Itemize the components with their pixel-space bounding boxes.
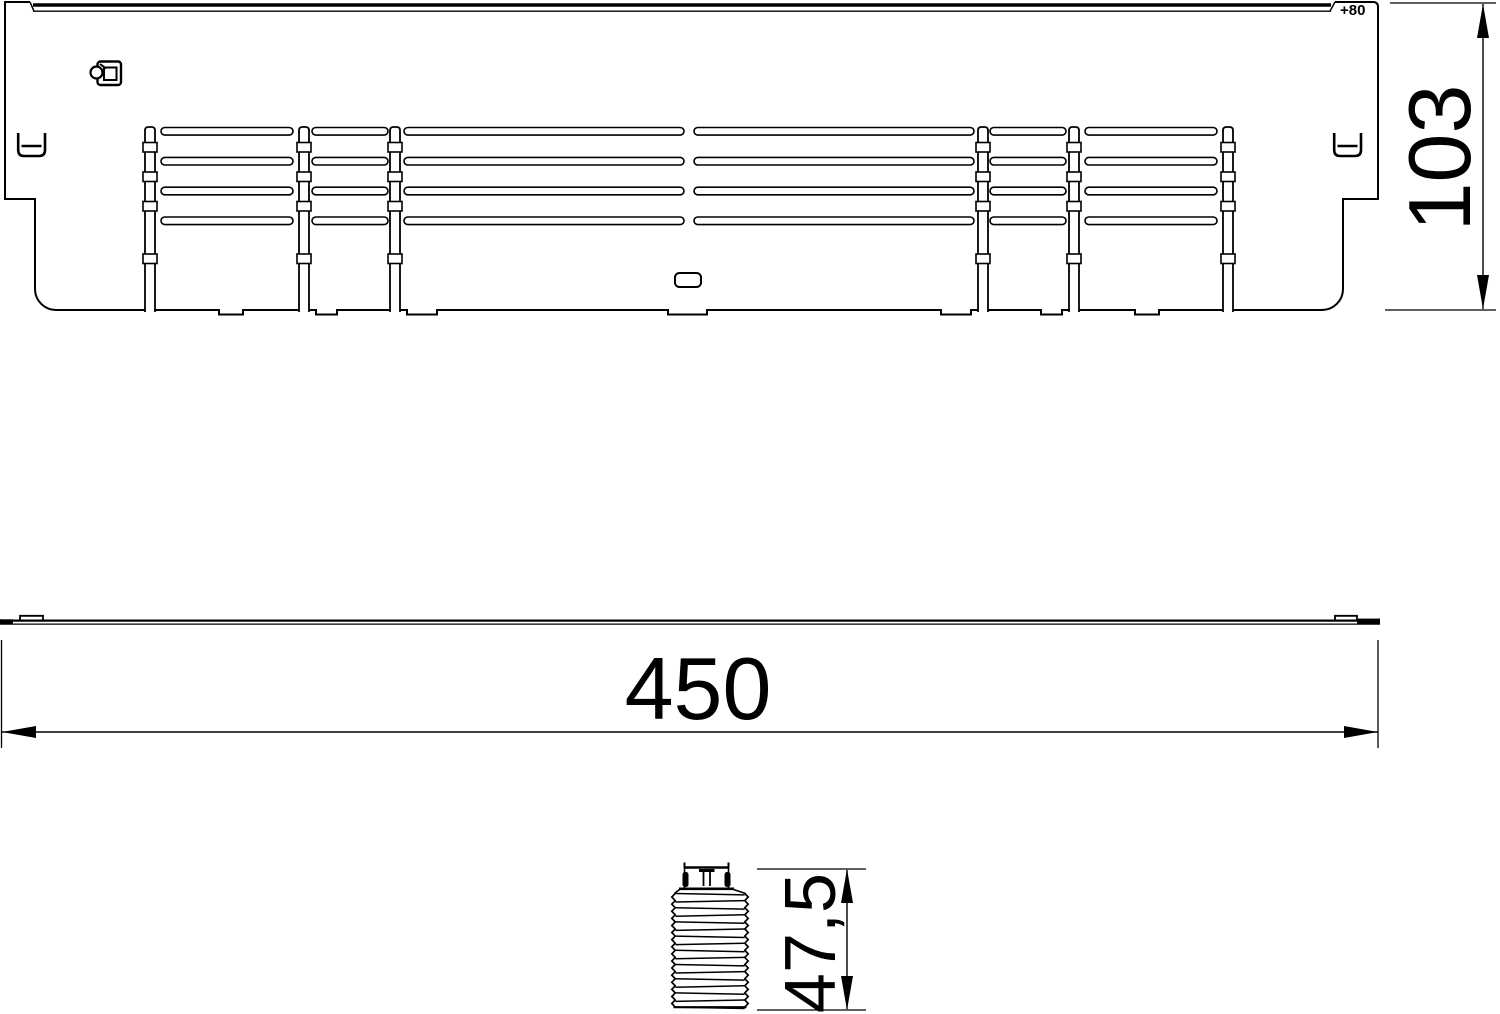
side-tab-right (1335, 616, 1357, 620)
dimension-overall-height: 103 (1385, 3, 1496, 310)
bracket-right-icon (1334, 133, 1361, 156)
vent-slot (161, 217, 293, 225)
height-dimension-label: 103 (1390, 85, 1489, 232)
offset-label: +80 (1340, 2, 1365, 19)
divider-columns (143, 127, 1235, 312)
vent-slots (161, 128, 1217, 225)
screw-thread-line (675, 965, 744, 966)
screw-thread-line (675, 979, 744, 980)
vent-slot (990, 187, 1066, 195)
vent-slot (312, 128, 388, 136)
vent-slot (312, 187, 388, 195)
vent-slot (161, 187, 293, 195)
vent-slot (990, 128, 1066, 136)
vent-slot (404, 187, 684, 195)
screw-thread-line (675, 957, 744, 958)
divider-column (1067, 127, 1081, 312)
clip-icon (91, 62, 122, 86)
latch-hole (675, 273, 701, 287)
cover-outline (5, 2, 1378, 315)
screw-length-label: 47,5 (771, 873, 851, 1013)
screw-thread-line (675, 894, 744, 895)
vent-slot (312, 217, 388, 225)
screw-thread-line (675, 972, 744, 973)
screw-thread-line (675, 950, 744, 951)
technical-drawing: +80 (0, 0, 1500, 1014)
vent-slot (694, 217, 974, 225)
technical-drawing-page: +80 (0, 0, 1500, 1014)
width-dimension-label: 450 (625, 639, 772, 738)
arrow-up-icon (1477, 4, 1489, 38)
dimension-screw-length: 47,5 (757, 869, 866, 1013)
screw-thread-line (675, 993, 744, 994)
screw-thread-line (675, 986, 744, 987)
screw-thread-line (675, 929, 744, 930)
vent-slot (694, 157, 974, 165)
vent-slot (694, 128, 974, 136)
arrow-right-icon (1344, 726, 1378, 738)
screw-thread-line (675, 915, 744, 916)
vent-slot (1085, 128, 1217, 136)
screw-head (675, 863, 746, 894)
top-rail (30, 2, 1335, 11)
screw-thread-edge (672, 894, 675, 1008)
vent-slot (161, 157, 293, 165)
arrow-left-icon (2, 726, 36, 738)
vent-slot (312, 157, 388, 165)
vent-slot (404, 157, 684, 165)
screw-thread-line (675, 908, 744, 909)
top-view: +80 (5, 2, 1378, 315)
vent-slot (990, 157, 1066, 165)
screw-thread-line (675, 901, 744, 902)
divider-column (297, 127, 311, 312)
screw-thread-line (675, 936, 744, 937)
vent-slot (161, 128, 293, 136)
arrow-down-icon (1477, 275, 1489, 309)
divider-column (1221, 127, 1235, 312)
side-end-block-left (0, 619, 13, 624)
side-tab-left (20, 616, 43, 620)
screw-thread-line (675, 922, 744, 923)
vent-slot (404, 217, 684, 225)
side-end-block-right (1357, 619, 1380, 624)
vent-slot (694, 187, 974, 195)
vent-slot (404, 128, 684, 136)
bracket-left-icon (18, 133, 45, 156)
side-view (0, 616, 1380, 625)
screw-thread-line (675, 1000, 744, 1001)
screw-detail (672, 863, 748, 1009)
vent-slot (1085, 157, 1217, 165)
divider-column (388, 127, 402, 312)
vent-slot (1085, 217, 1217, 225)
divider-column (143, 127, 157, 312)
screw-threads (675, 894, 744, 1009)
screw-thread-line (675, 943, 744, 944)
dimension-overall-width: 450 (2, 639, 1379, 748)
screw-thread-edge (745, 894, 748, 1008)
divider-column (976, 127, 990, 312)
vent-slot (990, 217, 1066, 225)
vent-slot (1085, 187, 1217, 195)
